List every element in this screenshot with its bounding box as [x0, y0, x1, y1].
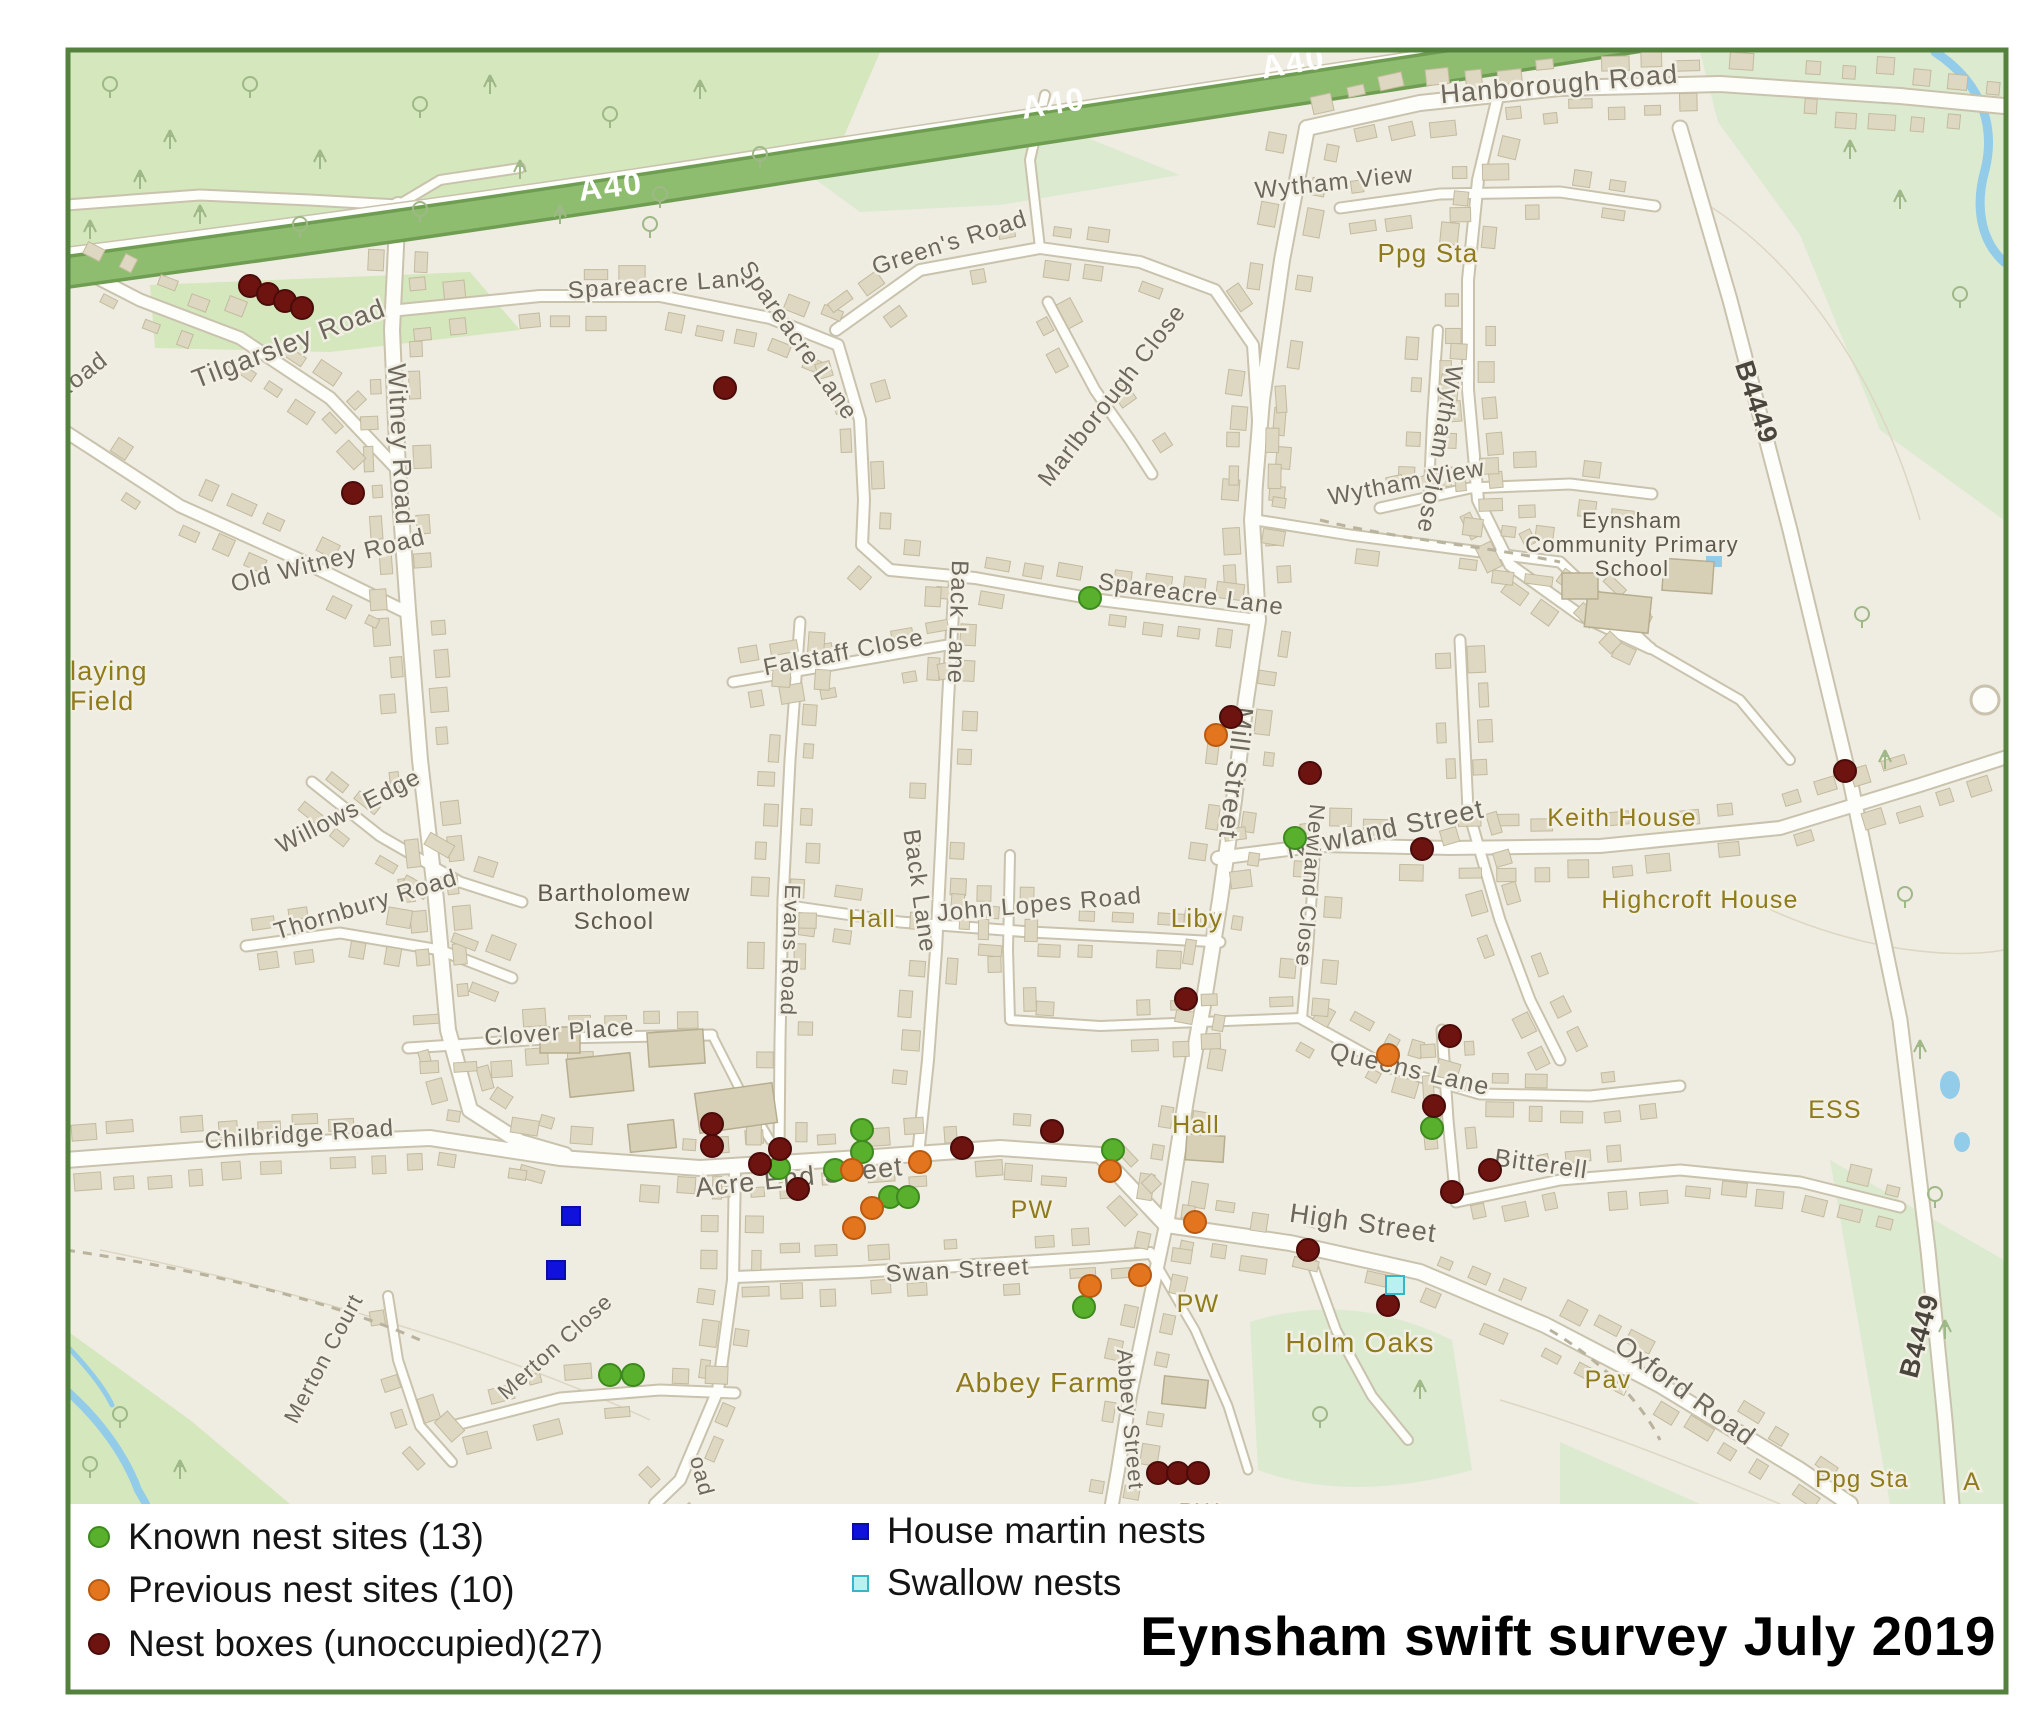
survey-map: A40A40A40B4449B4449Hanborough RoadWytham… [0, 0, 2043, 1725]
map-label: PW [1011, 1196, 1054, 1224]
nestbox-swatch [88, 1633, 110, 1655]
nestbox-marker [1377, 1294, 1399, 1316]
nestbox-marker [1220, 706, 1242, 728]
legend-item-previous: Previous nest sites (10) [88, 1569, 515, 1611]
map-label: ESS [1808, 1096, 1862, 1124]
map-label: Highcroft House [1601, 886, 1798, 914]
previous-nest-swatch [88, 1579, 110, 1601]
previous-marker [1377, 1044, 1399, 1066]
nestbox-marker [714, 377, 736, 399]
map-label: A [1963, 1468, 1981, 1496]
nestbox-marker [951, 1137, 973, 1159]
nestbox-marker [1175, 988, 1197, 1010]
previous-marker [1099, 1160, 1121, 1182]
known-marker [1421, 1117, 1443, 1139]
nestbox-marker [1187, 1462, 1209, 1484]
nestbox-marker [787, 1178, 809, 1200]
map-label: laying [70, 656, 148, 686]
house-martin-swatch [852, 1523, 869, 1540]
map-label: Field [70, 686, 135, 716]
known-marker [599, 1364, 621, 1386]
legend-label: Previous nest sites (10) [128, 1569, 515, 1611]
previous-marker [841, 1159, 863, 1181]
nestbox-marker [291, 297, 313, 319]
previous-marker [1079, 1275, 1101, 1297]
nestbox-marker [1479, 1159, 1501, 1181]
previous-marker [1129, 1264, 1151, 1286]
map-label: School [574, 908, 655, 935]
nestbox-marker [1423, 1095, 1445, 1117]
map-title: Eynsham swift survey July 2019 [1140, 1604, 1996, 1668]
legend-item-known: Known nest sites (13) [88, 1516, 484, 1558]
legend-item-swallow: Swallow nests [852, 1562, 1121, 1604]
legend-label: House martin nests [887, 1510, 1206, 1552]
known-marker [1284, 827, 1306, 849]
nestbox-marker [1147, 1462, 1169, 1484]
map-label: Keith House [1547, 804, 1696, 832]
legend-label: Swallow nests [887, 1562, 1121, 1604]
known-marker [897, 1186, 919, 1208]
map-label: Ppg Sta [1815, 1466, 1909, 1493]
nestbox-marker [1834, 760, 1856, 782]
known-nest-swatch [88, 1526, 110, 1548]
known-marker [1102, 1139, 1124, 1161]
legend-label: Known nest sites (13) [128, 1516, 484, 1558]
map-label: Pav [1585, 1366, 1632, 1394]
map-label: School [1595, 556, 1669, 581]
nestbox-marker [1439, 1025, 1461, 1047]
nestbox-marker [701, 1135, 723, 1157]
map-label: Eynsham [1582, 508, 1682, 533]
previous-marker [861, 1197, 883, 1219]
swallow-swatch [852, 1575, 869, 1592]
nestbox-marker [1297, 1239, 1319, 1261]
known-marker [1073, 1296, 1095, 1318]
map-label: Community Primary [1525, 532, 1739, 557]
legend-item-housemartin: House martin nests [852, 1510, 1206, 1552]
nestbox-marker [1041, 1120, 1063, 1142]
map-layers: A40A40A40B4449B4449Hanborough RoadWytham… [48, 36, 2004, 1526]
markers-swallow [1386, 1276, 1404, 1294]
map-label: Hall [848, 905, 896, 933]
housemartin-marker [547, 1261, 565, 1279]
nestbox-marker [342, 482, 364, 504]
known-marker [1079, 587, 1101, 609]
previous-marker [909, 1151, 931, 1173]
nestbox-marker [1411, 838, 1433, 860]
page: A40A40A40B4449B4449Hanborough RoadWytham… [0, 0, 2043, 1725]
housemartin-marker [562, 1207, 580, 1225]
legend-item-nestbox: Nest boxes (unoccupied)(27) [88, 1623, 603, 1665]
map-label: Bartholomew [537, 880, 690, 907]
previous-marker [1205, 724, 1227, 746]
known-marker [622, 1364, 644, 1386]
map-label: PW [1177, 1290, 1220, 1318]
swallow-marker [1386, 1276, 1404, 1294]
map-label: Ppg Sta [1378, 238, 1479, 268]
nestbox-marker [1441, 1181, 1463, 1203]
legend-label: Nest boxes (unoccupied)(27) [128, 1623, 603, 1665]
known-marker [851, 1119, 873, 1141]
previous-marker [843, 1217, 865, 1239]
map-label: Hall [1172, 1111, 1220, 1139]
map-label: Holm Oaks [1285, 1327, 1434, 1358]
map-label: Evans Road [776, 884, 806, 1017]
map-label: Liby [1171, 903, 1224, 933]
nestbox-marker [769, 1138, 791, 1160]
map-label: Abbey Farm [956, 1367, 1121, 1398]
previous-marker [1184, 1211, 1206, 1233]
nestbox-marker [1299, 762, 1321, 784]
nestbox-marker [1167, 1462, 1189, 1484]
nestbox-marker [701, 1113, 723, 1135]
map-label: Back Lane [942, 560, 973, 685]
nestbox-marker [749, 1153, 771, 1175]
